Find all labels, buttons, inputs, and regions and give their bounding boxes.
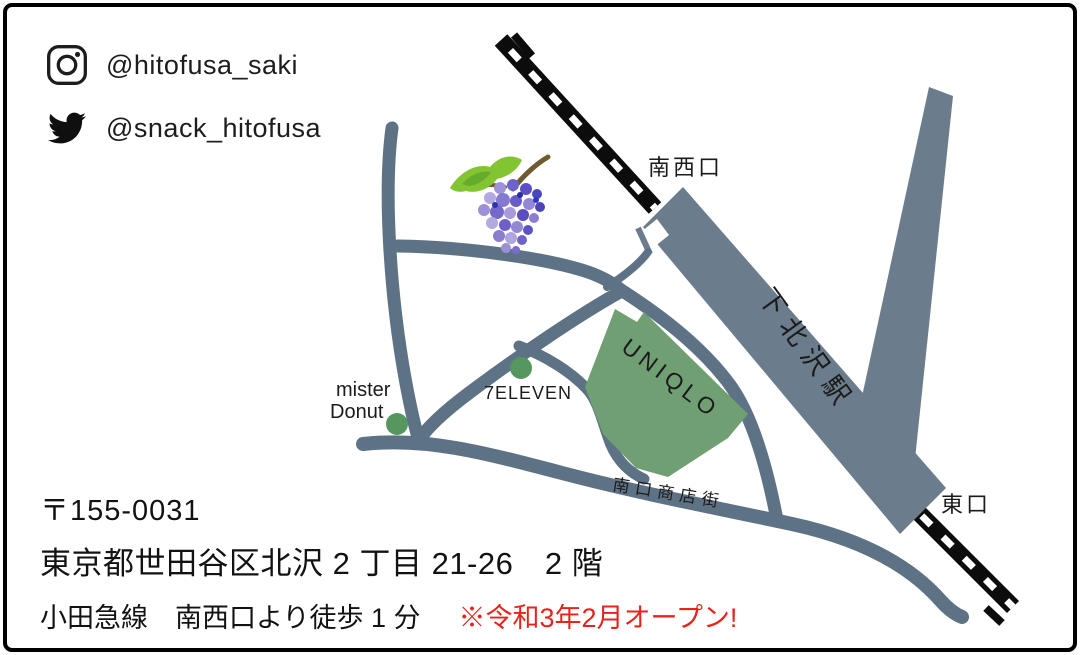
twitter-row: @snack_hitofusa: [44, 105, 321, 151]
twitter-handle: @snack_hitofusa: [106, 113, 321, 144]
social-handles: @hitofusa_saki @snack_hitofusa: [44, 42, 321, 151]
access-row: 小田急線 南西口より徒歩 1 分 ※令和3年2月オープン!: [40, 596, 737, 635]
instagram-handle: @hitofusa_saki: [106, 50, 298, 81]
road-west-vertical: [388, 128, 419, 441]
mister-donut-label-line2: Donut: [330, 401, 384, 423]
seven-eleven-label: 7ELEVEN: [484, 383, 572, 403]
instagram-icon: [44, 42, 90, 88]
road-center-branch: [398, 246, 621, 290]
seven-eleven-marker: [510, 357, 532, 379]
mister-donut-marker: [386, 413, 408, 435]
east-exit-label: 東口: [941, 492, 991, 517]
address-block: 〒155-0031 東京都世田谷区北沢 2 丁目 21-26 2 階 小田急線 …: [40, 487, 737, 635]
station-band-east: [850, 87, 953, 488]
grape-illustration: [450, 156, 548, 254]
postal-code: 〒155-0031: [40, 487, 737, 529]
access-info: 小田急線 南西口より徒歩 1 分: [40, 596, 420, 635]
railway-line-upper: [501, 35, 655, 208]
road-southwest-exit-stub: [607, 252, 648, 287]
twitter-icon: [44, 105, 90, 151]
mister-donut-label-line1: mister: [336, 379, 391, 401]
street-address: 東京都世田谷区北沢 2 丁目 21-26 2 階: [40, 538, 737, 583]
grape-berries: [478, 179, 545, 254]
southwest-exit-label: 南西口: [648, 155, 723, 180]
instagram-row: @hitofusa_saki: [44, 42, 321, 88]
opening-notice: ※令和3年2月オープン!: [458, 596, 737, 635]
